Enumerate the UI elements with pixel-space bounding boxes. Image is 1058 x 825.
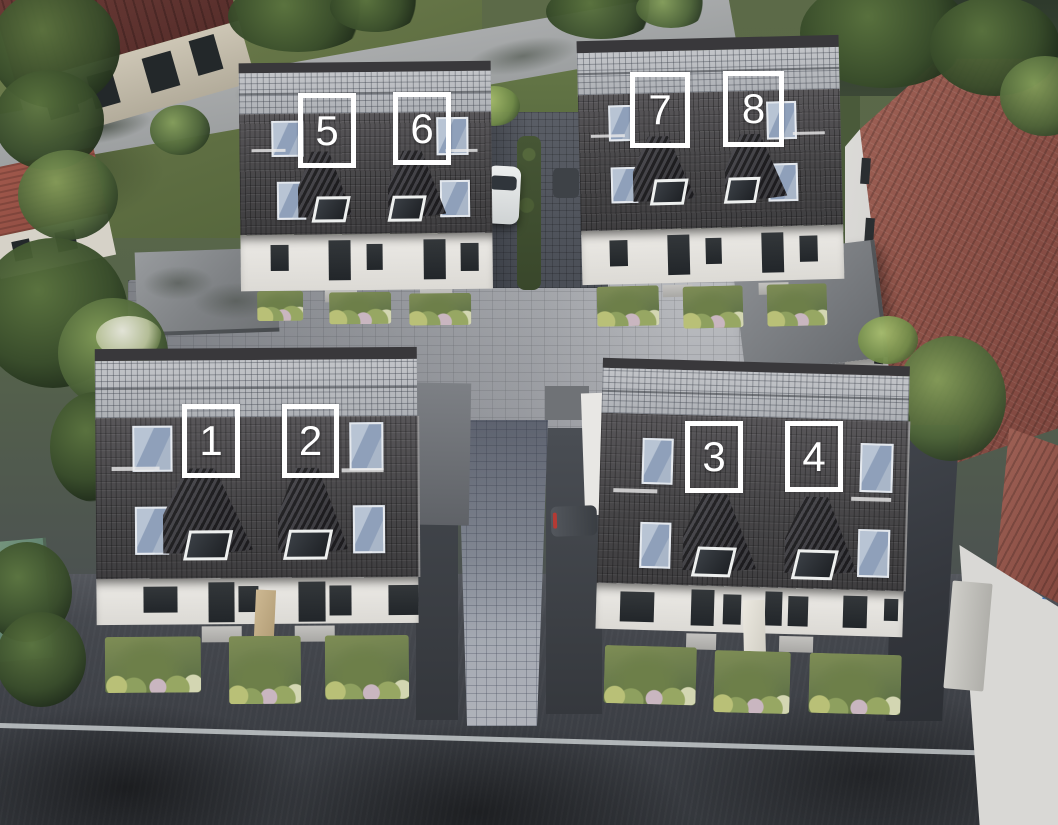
solar-panels [239, 71, 491, 117]
entrance-door [298, 582, 325, 622]
unit-label-7[interactable]: 7 [630, 72, 690, 148]
unit-label-5[interactable]: 5 [298, 93, 356, 168]
window [367, 244, 383, 270]
garden-patch [325, 635, 409, 700]
dormer-window [691, 547, 737, 578]
unit-label-3[interactable]: 3 [685, 421, 743, 493]
roof-ledge [112, 467, 160, 471]
dormer-window [283, 529, 333, 559]
skylight [132, 426, 172, 472]
front-gardens [582, 271, 845, 327]
window [723, 594, 742, 624]
house-units-5-6 [239, 61, 494, 330]
garden-patch [257, 291, 303, 321]
unit-number: 2 [299, 420, 322, 462]
dormer-window [791, 549, 839, 580]
skylight [859, 443, 893, 493]
neighbor-window [142, 51, 181, 94]
carport-center-left [414, 383, 471, 526]
window [705, 238, 722, 264]
garden-patch [713, 650, 791, 714]
entrance-door [761, 232, 784, 273]
garden-patch [409, 293, 471, 326]
front-gardens [97, 623, 420, 709]
skylight [639, 522, 671, 569]
parked-car-center [550, 505, 597, 537]
garden-patch [683, 285, 744, 328]
house-units-1-2 [95, 347, 420, 709]
garden-patch [767, 283, 828, 326]
entrance-door [328, 240, 350, 280]
front-gardens [241, 281, 493, 330]
entrance-door [691, 589, 715, 626]
skylight [857, 529, 890, 578]
garden-patch [808, 653, 902, 716]
window [388, 585, 418, 615]
house-units-3-4 [593, 358, 910, 721]
entrance-door [765, 591, 783, 625]
window [609, 240, 628, 266]
window [799, 235, 818, 261]
entrance-door [667, 235, 690, 276]
tree [0, 612, 86, 707]
dormer-window [724, 177, 761, 204]
unit-number: 4 [802, 436, 825, 478]
tree [18, 150, 118, 240]
unit-label-4[interactable]: 4 [785, 421, 843, 492]
solar-panels [95, 359, 417, 420]
window [271, 245, 289, 271]
garden-patch [229, 636, 301, 705]
roof-ledge [342, 468, 384, 472]
garden-patch [603, 645, 697, 706]
bush [858, 316, 918, 364]
garden-patch [105, 636, 201, 693]
unit-label-6[interactable]: 6 [393, 92, 451, 165]
window [329, 585, 351, 615]
neighbor-window [189, 34, 224, 76]
dormer-window [650, 179, 689, 206]
window [788, 596, 809, 627]
window [843, 596, 868, 629]
unit-label-2[interactable]: 2 [282, 404, 339, 478]
bush [150, 105, 210, 155]
building-window [860, 158, 871, 185]
skylight [353, 505, 385, 553]
hedge-strip [517, 136, 541, 290]
aerial-site-plan: 1 2 3 4 5 6 7 8 [0, 0, 1058, 825]
entrance-door [423, 239, 445, 279]
unit-label-8[interactable]: 8 [723, 71, 784, 147]
skylight [349, 422, 383, 470]
window [884, 599, 899, 621]
dormer-window [183, 530, 233, 560]
garden-patch [329, 292, 391, 325]
window [461, 243, 479, 271]
unit-number: 3 [702, 436, 725, 478]
skylight [642, 438, 674, 485]
unit-number: 6 [410, 108, 433, 150]
dark-car-top [553, 168, 579, 198]
unit-number: 5 [315, 110, 338, 152]
garden-patch [597, 285, 660, 327]
roof-ledge [252, 149, 286, 152]
unit-number: 8 [742, 88, 765, 130]
tree [896, 336, 1006, 461]
front-gardens [593, 629, 902, 722]
house-units-7-8 [577, 35, 846, 329]
central-footpath [456, 420, 548, 726]
entrance-door [208, 582, 234, 622]
window [143, 587, 177, 613]
dormer-window [312, 196, 351, 222]
dormer-window [388, 195, 427, 221]
unit-number: 7 [648, 89, 671, 131]
unit-number: 1 [199, 420, 222, 462]
unit-label-1[interactable]: 1 [182, 404, 240, 478]
window [620, 591, 655, 622]
